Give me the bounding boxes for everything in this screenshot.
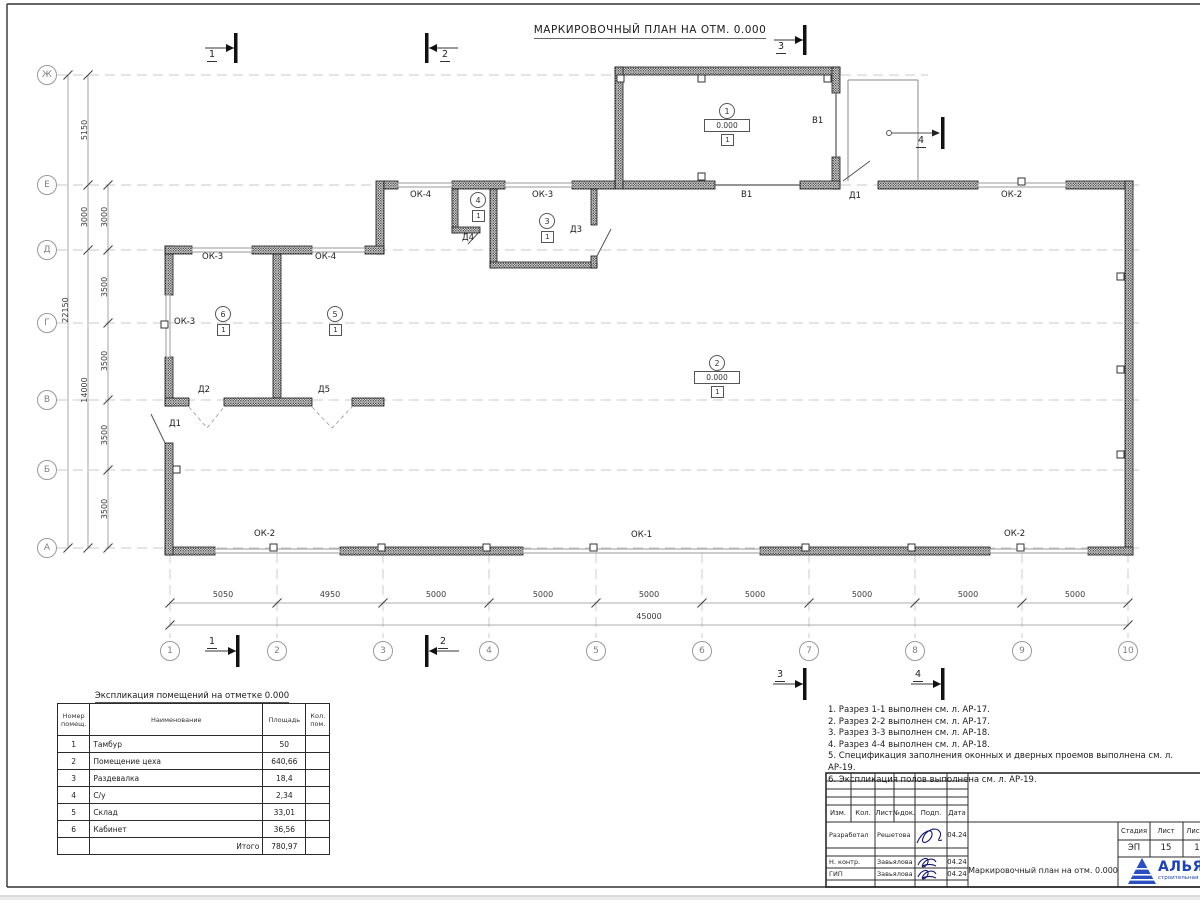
room-name: Склад xyxy=(90,804,263,821)
grid-row-bubble: Г xyxy=(37,313,57,333)
explication-row: 4 С/у 2,34 xyxy=(58,787,330,804)
dimension-ticks xyxy=(64,71,1133,630)
stage-value: ЭП xyxy=(1128,844,1140,853)
staff-role: Н. контр. xyxy=(829,859,860,866)
dim-label: 5000 xyxy=(426,591,446,599)
grid-col-bubble: 10 xyxy=(1118,641,1138,661)
grid-col-bubble: 1 xyxy=(160,641,180,661)
grid-row-bubble: Д xyxy=(37,240,57,260)
note-line: 1. Разрез 1-1 выполнен см. л. АР-17. xyxy=(828,705,1200,717)
room-no: 1 xyxy=(58,736,90,753)
door-mark: Д1 xyxy=(169,420,181,429)
room-number: 1 xyxy=(719,103,735,119)
room-count xyxy=(306,821,330,838)
company-logo-triangle xyxy=(1128,858,1156,884)
room-area: 18,4 xyxy=(263,770,306,787)
sheets-label: Листов xyxy=(1186,828,1200,835)
window-mark: ОК-2 xyxy=(1001,191,1022,200)
grid-col-bubble: 6 xyxy=(692,641,712,661)
empty-cell xyxy=(306,838,330,855)
canopy-arrow xyxy=(887,130,941,137)
windows xyxy=(166,183,1088,553)
room-elevation: 0.000 xyxy=(704,119,750,132)
room-area: 2,34 xyxy=(263,787,306,804)
gate-mark: В1 xyxy=(812,117,823,126)
window-mark: ОК-3 xyxy=(202,253,223,262)
dim-label: 3500 xyxy=(101,425,109,445)
dim-label: 5000 xyxy=(958,591,978,599)
dim-label: 5000 xyxy=(639,591,659,599)
staff-name: Завьялова xyxy=(877,871,913,878)
company-logo-text: АЛЬЯНС xyxy=(1158,860,1200,874)
canopy xyxy=(848,80,918,181)
room-count xyxy=(306,804,330,821)
explication-total-row: Итого 780,97 xyxy=(58,838,330,855)
section-mark-label: 4 xyxy=(913,670,923,682)
room-no: 2 xyxy=(58,753,90,770)
room-elevation: 0.000 xyxy=(694,371,740,384)
window-mark: ОК-3 xyxy=(174,318,195,327)
room-area: 36,56 xyxy=(263,821,306,838)
room-count xyxy=(306,787,330,804)
dim-label: 3500 xyxy=(101,277,109,297)
dim-label: 5050 xyxy=(213,591,233,599)
explication-table: Номер помещ. Наименование Площадь Кол. п… xyxy=(57,703,330,855)
floor-type-box: 1 xyxy=(329,324,342,336)
dim-label: 5000 xyxy=(852,591,872,599)
explication-header: Кол. пом. xyxy=(306,704,330,736)
note-line: 2. Разрез 2-2 выполнен см. л. АР-17. xyxy=(828,717,1200,729)
floor-type-box: 1 xyxy=(472,210,485,222)
explication-row: 3 Раздевалка 18,4 xyxy=(58,770,330,787)
room-area: 33,01 xyxy=(263,804,306,821)
floor-type-box: 1 xyxy=(217,324,230,336)
titleblock-col-header: Лист xyxy=(875,810,892,817)
note-line: 4. Разрез 4-4 выполнен см. л. АР-18. xyxy=(828,740,1200,752)
section-mark-label: 4 xyxy=(916,136,926,148)
explication-row: 2 Помещение цеха 640,66 xyxy=(58,753,330,770)
grid-col-bubble: 3 xyxy=(373,641,393,661)
room-number: 3 xyxy=(539,213,555,229)
door-mark: Д5 xyxy=(318,386,330,395)
dim-label: 5000 xyxy=(1065,591,1085,599)
titleblock-col-header: Дата xyxy=(948,810,966,817)
room-number: 5 xyxy=(327,306,343,322)
explication-row: 6 Кабинет 36,56 xyxy=(58,821,330,838)
room-name: Помещение цеха xyxy=(90,753,263,770)
door-mark: Д2 xyxy=(198,386,210,395)
total-area: 780,97 xyxy=(263,838,306,855)
floor-type-box: 1 xyxy=(541,231,554,243)
explication-row: 1 Тамбур 50 xyxy=(58,736,330,753)
window-mark: ОК-4 xyxy=(410,191,431,200)
explication-title: Экспликация помещений на отметке 0.000 xyxy=(57,691,327,701)
signatures xyxy=(917,829,942,879)
grid-col-bubble: 2 xyxy=(267,641,287,661)
staff-name: Решетова xyxy=(877,832,910,839)
room-no: 4 xyxy=(58,787,90,804)
dim-label: 3500 xyxy=(101,499,109,519)
door-swing-leaders xyxy=(189,407,352,428)
grid-row-bubble: Е xyxy=(37,175,57,195)
grid-row-bubble: Б xyxy=(37,460,57,480)
note-line: 3. Разрез 3-3 выполнен см. л. АР-18. xyxy=(828,728,1200,740)
room-number: 4 xyxy=(470,192,486,208)
section-mark-label: 2 xyxy=(438,637,448,649)
explication-header: Наименование xyxy=(90,704,263,736)
room-no: 6 xyxy=(58,821,90,838)
room-name: Тамбур xyxy=(90,736,263,753)
dim-label: 3500 xyxy=(101,351,109,371)
grid-col-bubble: 4 xyxy=(479,641,499,661)
titleblock-col-header: №док. xyxy=(893,810,915,817)
room-number: 2 xyxy=(709,355,725,371)
empty-cell xyxy=(58,838,90,855)
dim-label: 5000 xyxy=(533,591,553,599)
explication-row: 5 Склад 33,01 xyxy=(58,804,330,821)
staff-date: 04.24 xyxy=(947,832,966,839)
staff-role: ГИП xyxy=(829,871,843,878)
room-name: С/у xyxy=(90,787,263,804)
section-marks xyxy=(205,25,945,700)
titleblock-col-header: Подп. xyxy=(921,810,942,817)
grid-row-bubble: Ж xyxy=(37,65,57,85)
room-number: 6 xyxy=(215,306,231,322)
drawing-sheet: МАРКИРОВОЧНЫЙ ПЛАН НА ОТМ. 0.000 Ж Е Д Г… xyxy=(0,0,1200,900)
company-logo-subtext: строительная компания xyxy=(1158,876,1200,882)
section-mark-label: 2 xyxy=(440,50,450,62)
dim-label: 5150 xyxy=(81,120,89,140)
room-no: 5 xyxy=(58,804,90,821)
explication-header: Номер помещ. xyxy=(58,704,90,736)
staff-date: 04.24 xyxy=(947,871,966,878)
grid-row-bubble: А xyxy=(37,538,57,558)
door-mark: Д1 xyxy=(849,192,861,201)
dim-total-height: 22150 xyxy=(62,297,70,322)
section-mark-label: 1 xyxy=(207,637,217,649)
section-mark-label: 3 xyxy=(775,670,785,682)
total-label: Итого xyxy=(90,838,263,855)
grid-row-bubble: В xyxy=(37,390,57,410)
window-mark: ОК-2 xyxy=(1004,530,1025,539)
page-title: МАРКИРОВОЧНЫЙ ПЛАН НА ОТМ. 0.000 xyxy=(500,24,800,36)
window-mark: ОК-3 xyxy=(532,191,553,200)
floor-type-box: 1 xyxy=(711,386,724,398)
dim-label: 3000 xyxy=(81,207,89,227)
floor-type-box: 1 xyxy=(721,134,734,146)
notes-block: 1. Разрез 1-1 выполнен см. л. АР-17. 2. … xyxy=(828,705,1200,786)
gate-mark: В1 xyxy=(741,191,752,200)
room-name: Кабинет xyxy=(90,821,263,838)
dim-label: 5000 xyxy=(745,591,765,599)
grid-col-bubble: 5 xyxy=(586,641,606,661)
room-area: 50 xyxy=(263,736,306,753)
pilasters xyxy=(161,75,1124,551)
room-area: 640,66 xyxy=(263,753,306,770)
sheet-value: 15 xyxy=(1161,844,1172,853)
window-mark: ОК-1 xyxy=(631,531,652,540)
dim-label: 14000 xyxy=(81,377,89,402)
note-line: 5. Спецификация заполнения оконных и две… xyxy=(828,751,1200,774)
staff-role: Разработал xyxy=(829,832,868,839)
room-count xyxy=(306,753,330,770)
titleblock-doc-title: Маркировочный план на отм. 0.000 xyxy=(968,866,1118,875)
staff-date: 04.24 xyxy=(947,859,966,866)
section-mark-label: 3 xyxy=(776,42,786,54)
sheets-value: 1 xyxy=(1194,844,1199,853)
note-line: 6. Экспликация полов выполнена см. л. АР… xyxy=(828,775,1200,787)
stage-label: Стадия xyxy=(1121,828,1147,835)
door-mark: Д3 xyxy=(570,226,582,235)
titleblock-col-header: Кол. xyxy=(855,810,871,817)
staff-name: Завьялова xyxy=(877,859,913,866)
window-mark: ОК-2 xyxy=(254,530,275,539)
window-mark: ОК-4 xyxy=(315,253,336,262)
grid-col-bubble: 9 xyxy=(1012,641,1032,661)
explication-header: Площадь xyxy=(263,704,306,736)
dim-label: 4950 xyxy=(320,591,340,599)
room-no: 3 xyxy=(58,770,90,787)
dimension-lines xyxy=(68,75,1128,625)
grid-col-bubble: 7 xyxy=(799,641,819,661)
grid-col-bubble: 8 xyxy=(905,641,925,661)
section-mark-label: 1 xyxy=(207,50,217,62)
dim-label: 3000 xyxy=(101,207,109,227)
door-mark: Д4 xyxy=(462,234,474,243)
sheet-label: Лист xyxy=(1157,828,1174,835)
room-count xyxy=(306,770,330,787)
walls xyxy=(165,67,1133,555)
room-count xyxy=(306,736,330,753)
room-name: Раздевалка xyxy=(90,770,263,787)
titleblock-col-header: Изм. xyxy=(830,810,846,817)
dim-total-width: 45000 xyxy=(636,613,661,621)
